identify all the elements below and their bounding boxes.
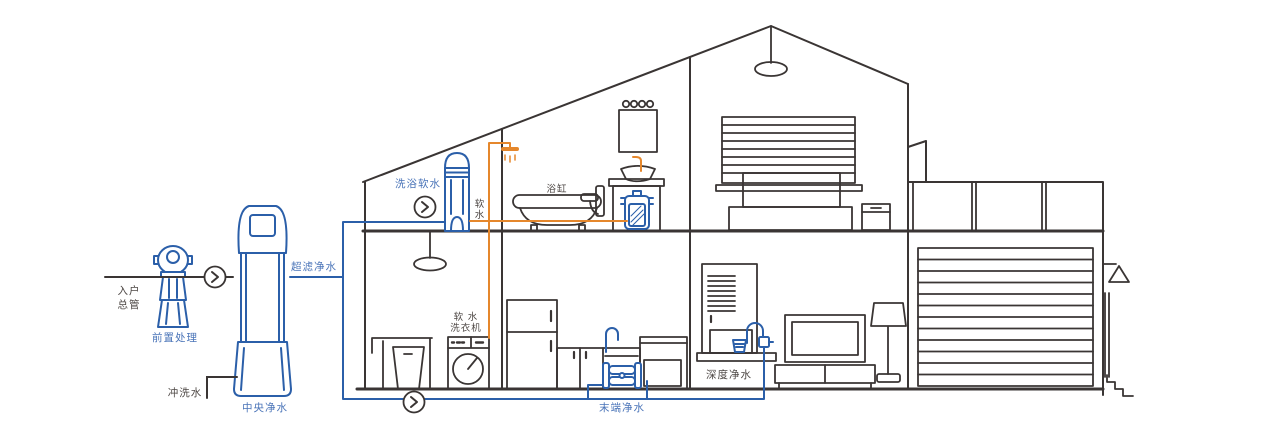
dispenser-valve-icon xyxy=(759,337,773,347)
pre-treatment-device xyxy=(154,246,192,327)
bed-headboard xyxy=(743,173,840,207)
washing-machine-icon xyxy=(448,337,489,389)
roof xyxy=(363,26,908,182)
purified-water-pipes xyxy=(290,222,764,399)
downspout xyxy=(1105,293,1109,377)
under-sink-ro-filter-device xyxy=(603,363,641,388)
mirror-light-icon xyxy=(623,101,629,107)
label-soft-washer-1: 软 水 xyxy=(454,311,479,323)
pendant-lamp-icon xyxy=(755,62,787,76)
laundry-hamper xyxy=(393,347,424,389)
mirror-light-icon xyxy=(639,101,645,107)
bedroom xyxy=(716,26,890,230)
flow-arrow-softener xyxy=(415,197,436,218)
soft-water-pipes xyxy=(470,143,627,338)
label-flush-water: 冲洗水 xyxy=(168,386,203,399)
basin-faucet-icon xyxy=(633,157,641,171)
garage-door-slats xyxy=(918,260,1093,375)
label-entry-main-line2: 总管 xyxy=(118,298,141,311)
nightstand-detail xyxy=(862,208,890,212)
mirror-light-icon xyxy=(631,101,637,107)
label-terminal-purification: 末端净水 xyxy=(599,401,645,414)
tv-icon xyxy=(785,315,865,362)
vanity-counter xyxy=(609,179,664,186)
garage xyxy=(908,141,1133,396)
entry-steps xyxy=(1107,375,1133,396)
bath-softener-device xyxy=(445,153,469,231)
label-pre-treatment: 前置处理 xyxy=(152,331,198,344)
under-basin-heater-device xyxy=(621,191,653,229)
label-soft-water-vert-2: 水 xyxy=(475,209,486,221)
label-bathtub: 浴缸 xyxy=(546,183,567,195)
mirror xyxy=(619,110,657,152)
shower-head-icon xyxy=(501,147,519,162)
garage-parapet xyxy=(908,141,926,182)
label-deep-purification: 深度净水 xyxy=(706,368,752,381)
laundry-table xyxy=(372,338,432,389)
blind-slats xyxy=(722,125,855,173)
kitchen xyxy=(507,300,687,389)
flush-water-pipe xyxy=(207,377,237,398)
bed-base xyxy=(729,207,852,230)
fridge-icon xyxy=(507,300,557,389)
label-central-purification: 中央净水 xyxy=(242,401,288,414)
label-bath-soft-water: 洗浴软水 xyxy=(395,177,441,190)
floor-lamp-icon xyxy=(871,303,906,382)
water-cup-icon xyxy=(733,340,746,352)
diagram-canvas: 入户 总管 前置处理 冲洗水 中央净水 超滤净水 洗浴软水 软 水 浴缸 软 水… xyxy=(0,0,1280,434)
pendant-lamp-icon xyxy=(414,258,446,271)
flow-arrow-ground xyxy=(404,392,425,413)
house-water-system-diagram: 入户 总管 前置处理 冲洗水 中央净水 超滤净水 洗浴软水 软 水 浴缸 软 水… xyxy=(0,0,1280,434)
label-entry-main-line1: 入户 xyxy=(118,284,141,297)
label-soft-washer-2: 洗衣机 xyxy=(450,322,482,334)
laundry-room xyxy=(372,231,489,389)
tv-stand xyxy=(775,365,875,388)
label-soft-water-vert-1: 软 xyxy=(475,198,486,210)
flow-arrow-entry xyxy=(205,267,226,288)
label-ultrafiltration: 超滤净水 xyxy=(291,260,337,273)
garage-window-mullions xyxy=(913,182,1046,231)
mirror-light-icon xyxy=(647,101,653,107)
central-purifier-device xyxy=(234,206,291,396)
wall-lamp-icon xyxy=(1103,264,1129,282)
